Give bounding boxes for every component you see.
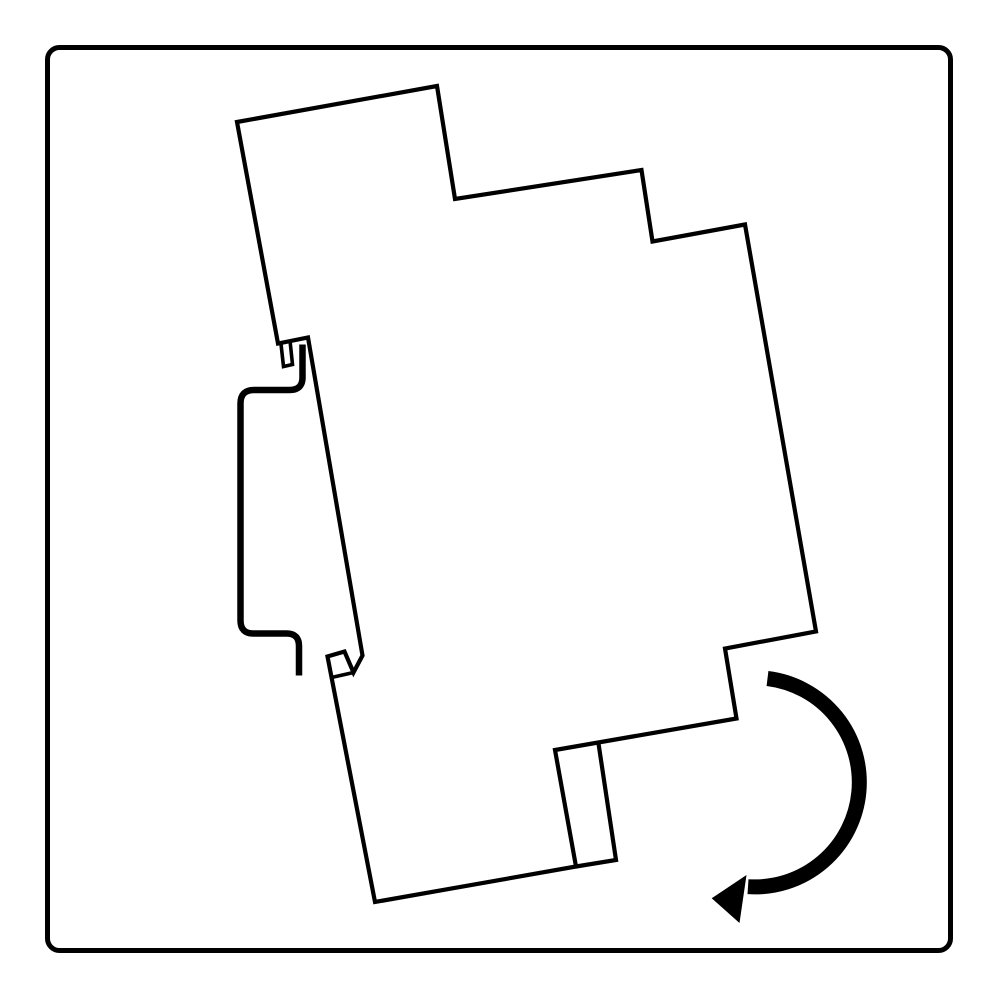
rotation-arrow-head [712, 875, 747, 923]
din-rail-mounting-diagram [0, 0, 1000, 1000]
device-top-hook-notch [281, 343, 293, 367]
diagram-frame [48, 48, 951, 951]
device-bottom-foot [576, 744, 616, 867]
din-rail-profile [241, 345, 303, 676]
device-bottom-clip-edge [332, 673, 354, 678]
rotation-arrow-arc [748, 679, 859, 887]
diagram-page [0, 0, 1000, 1000]
device-outline [237, 86, 816, 902]
